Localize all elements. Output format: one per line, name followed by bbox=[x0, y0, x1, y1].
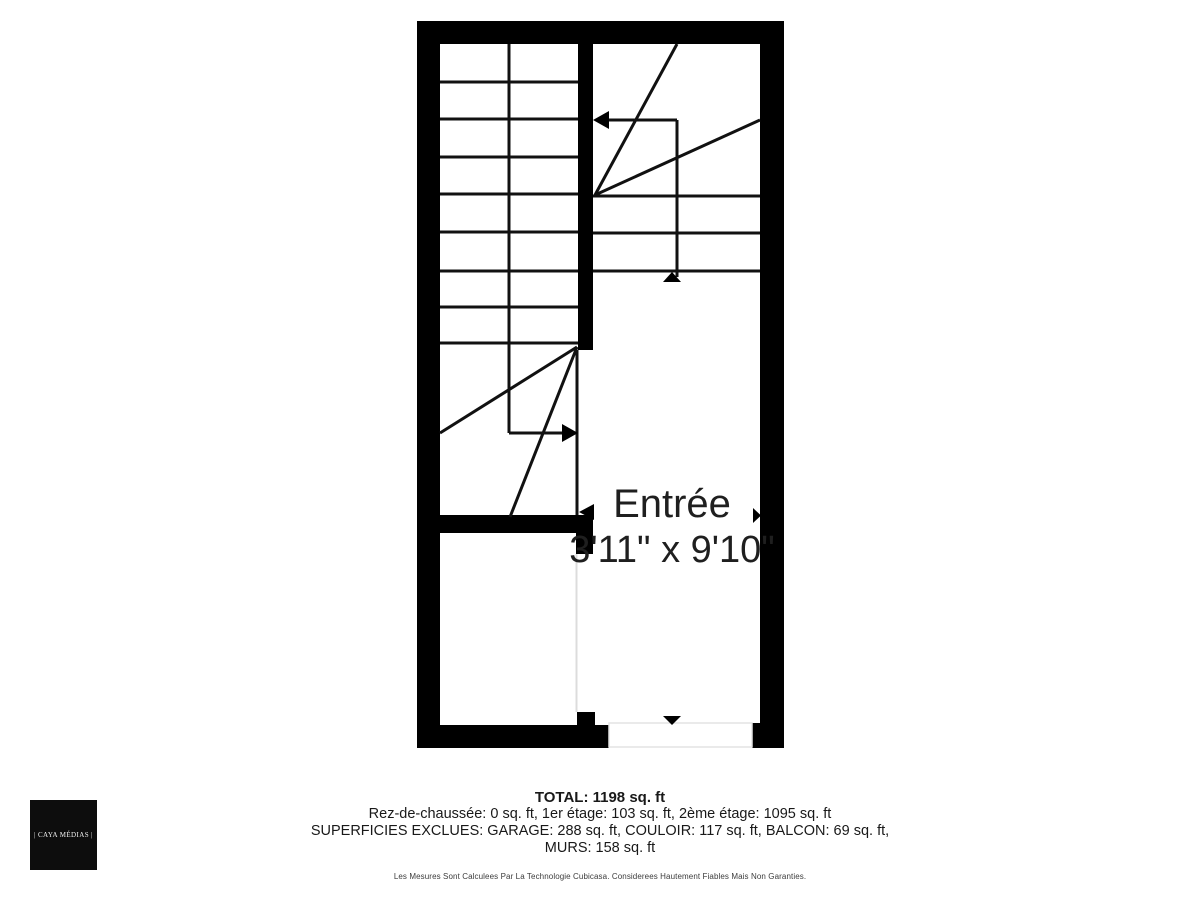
wall-bottom-left bbox=[417, 725, 609, 748]
wall-right bbox=[760, 21, 784, 748]
staircase-right bbox=[593, 44, 760, 282]
entry-threshold bbox=[609, 723, 752, 747]
wall-left bbox=[417, 21, 440, 748]
wall-bottom-right-corner bbox=[752, 723, 784, 748]
wall-stair-divider bbox=[578, 21, 593, 350]
walls bbox=[417, 21, 784, 748]
staircase-left bbox=[440, 44, 578, 517]
logo-box: | CAYA MÉDIAS | bbox=[30, 800, 97, 870]
floorplan-page: Entrée 3'11" x 9'10" TOTAL: 1198 sq. ft … bbox=[0, 0, 1200, 900]
area-summary: TOTAL: 1198 sq. ft Rez-de-chaussée: 0 sq… bbox=[0, 789, 1200, 857]
summary-excluded-line2: MURS: 158 sq. ft bbox=[0, 840, 1200, 857]
wall-stub-upper bbox=[576, 533, 593, 554]
wall-top bbox=[417, 21, 784, 44]
floorplan-drawing bbox=[0, 0, 1200, 900]
summary-total: TOTAL: 1198 sq. ft bbox=[0, 789, 1200, 806]
logo-text: | CAYA MÉDIAS | bbox=[34, 831, 93, 839]
side-door-arrow-right-icon bbox=[753, 508, 761, 523]
door-markers bbox=[579, 504, 761, 725]
wall-stub-lower bbox=[577, 712, 595, 726]
summary-floors: Rez-de-chaussée: 0 sq. ft, 1er étage: 10… bbox=[0, 806, 1200, 823]
summary-excluded-line1: SUPERFICIES EXCLUES: GARAGE: 288 sq. ft,… bbox=[0, 823, 1200, 840]
stair-direction-arrow-left-icon bbox=[593, 111, 609, 129]
measurement-disclaimer: Les Mesures Sont Calculees Par La Techno… bbox=[0, 872, 1200, 881]
wall-interior-horizontal bbox=[430, 515, 593, 533]
entry-room-boundary bbox=[577, 350, 753, 747]
